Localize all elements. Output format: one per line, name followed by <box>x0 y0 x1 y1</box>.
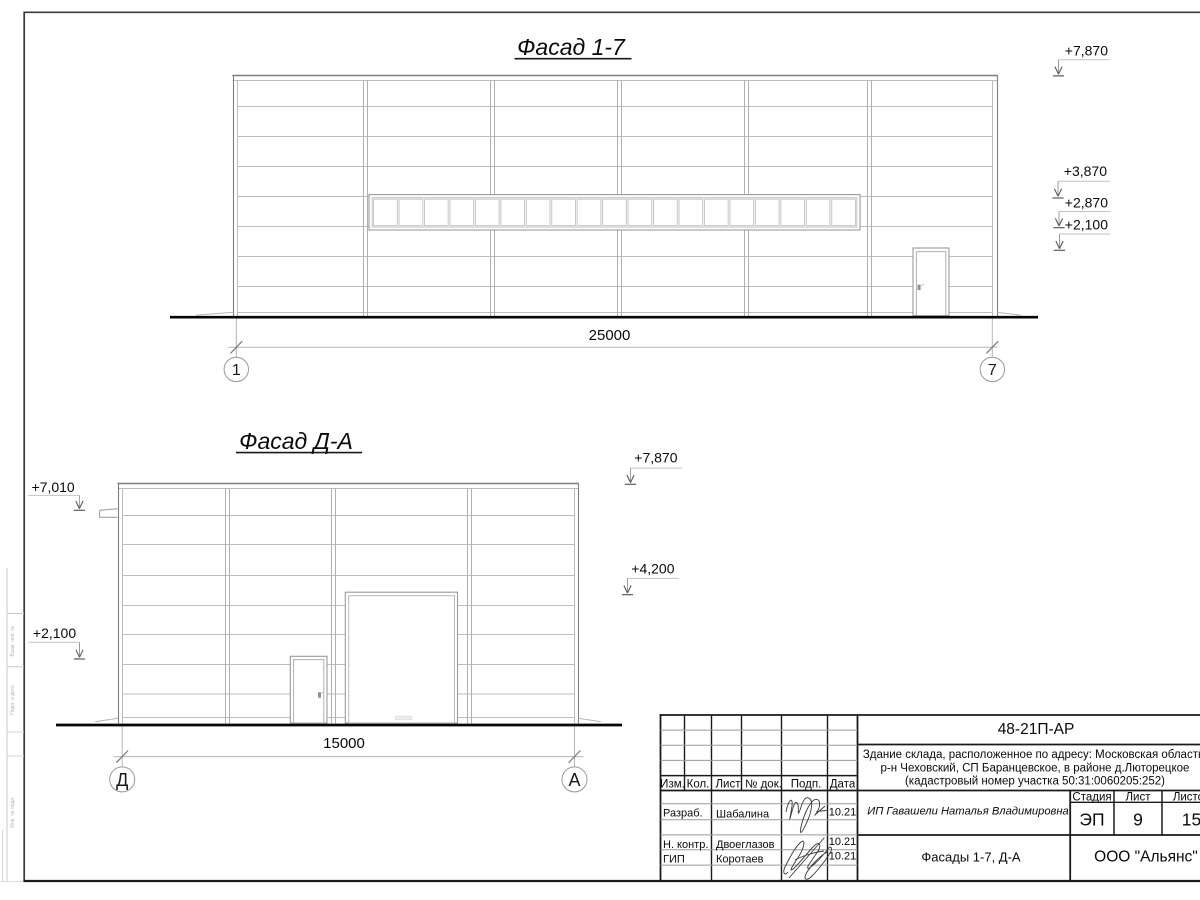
svg-text:Листов: Листов <box>1173 791 1200 803</box>
svg-text:Д: Д <box>116 770 128 790</box>
svg-text:Лист: Лист <box>716 778 742 790</box>
svg-text:Двоеглазов: Двоеглазов <box>716 839 775 851</box>
svg-text:р-н Чеховский, СП Баранцевское: р-н Чеховский, СП Баранцевское, в районе… <box>881 762 1190 774</box>
svg-text:Н. контр.: Н. контр. <box>663 839 708 851</box>
svg-text:10.21: 10.21 <box>829 836 857 848</box>
svg-text:+2,100: +2,100 <box>33 625 76 641</box>
svg-text:+2,100: +2,100 <box>1065 216 1108 232</box>
svg-text:+2,870: +2,870 <box>1065 194 1108 210</box>
svg-text:А: А <box>568 770 580 790</box>
svg-text:ИП Гавашели Наталья Владимиров: ИП Гавашели Наталья Владимировна <box>867 806 1069 818</box>
svg-text:Шабалина: Шабалина <box>716 809 770 821</box>
svg-text:+7,010: +7,010 <box>32 479 75 495</box>
svg-text:№ док.: № док. <box>745 778 782 790</box>
svg-text:Коротаев: Коротаев <box>716 853 764 865</box>
svg-text:15000: 15000 <box>323 735 365 752</box>
svg-text:Фасады 1-7, Д-А: Фасады 1-7, Д-А <box>921 849 1021 864</box>
svg-text:15: 15 <box>1182 810 1200 830</box>
svg-text:+3,870: +3,870 <box>1064 163 1107 179</box>
svg-text:Фасад 1-7: Фасад 1-7 <box>517 34 626 60</box>
svg-text:Инв. № подл.: Инв. № подл. <box>10 796 16 827</box>
svg-text:48-21П-АР: 48-21П-АР <box>998 721 1075 738</box>
svg-text:1: 1 <box>232 362 241 379</box>
svg-text:Кол.: Кол. <box>687 778 710 790</box>
svg-text:7: 7 <box>988 362 997 379</box>
svg-text:Стадия: Стадия <box>1072 791 1111 803</box>
svg-text:Фасад Д-А: Фасад Д-А <box>239 428 353 454</box>
svg-text:Здание склада, расположенное п: Здание склада, расположенное по адресу: … <box>863 749 1200 761</box>
svg-text:Лист: Лист <box>1126 791 1152 803</box>
svg-text:+7,870: +7,870 <box>1065 42 1108 58</box>
svg-text:ООО "Альянс": ООО "Альянс" <box>1094 848 1198 865</box>
svg-text:Подп. и дата: Подп. и дата <box>10 685 16 715</box>
svg-text:Подп.: Подп. <box>791 778 822 790</box>
svg-text:9: 9 <box>1133 810 1143 830</box>
svg-text:(кадастровый номер участка 50:: (кадастровый номер участка 50:31:0060205… <box>905 775 1165 787</box>
svg-text:Разраб.: Разраб. <box>663 808 703 820</box>
svg-text:+7,870: +7,870 <box>634 450 677 466</box>
svg-text:25000: 25000 <box>589 327 631 344</box>
svg-text:ГИП: ГИП <box>663 853 685 865</box>
svg-text:10.21: 10.21 <box>829 850 857 862</box>
svg-text:ЭП: ЭП <box>1079 810 1104 830</box>
svg-text:Изм.: Изм. <box>660 778 685 790</box>
svg-text:Дата: Дата <box>830 778 856 790</box>
svg-text:+4,200: +4,200 <box>631 561 674 577</box>
svg-text:10.21: 10.21 <box>829 807 857 819</box>
svg-text:Взам. инв. №: Взам. инв. № <box>10 626 16 657</box>
